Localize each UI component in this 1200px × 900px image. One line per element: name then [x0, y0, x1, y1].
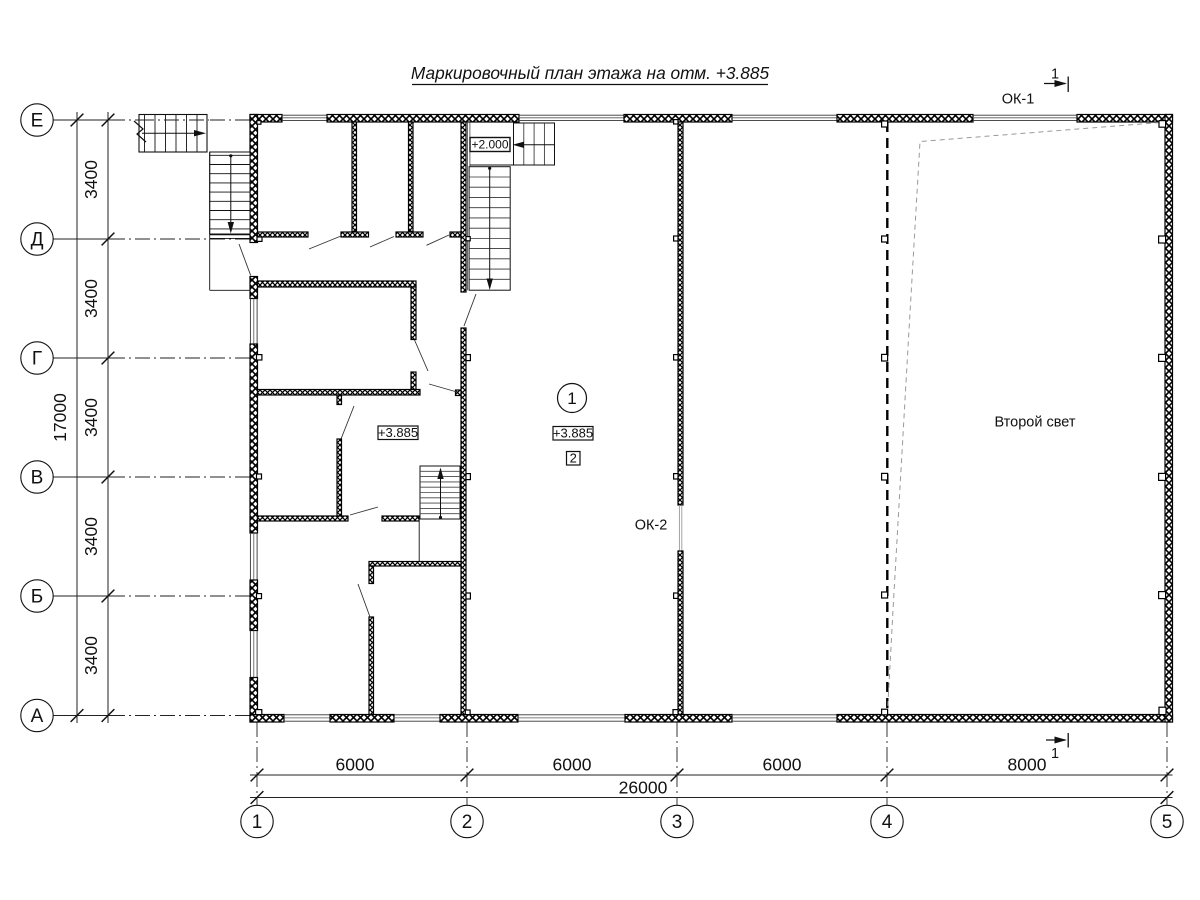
- svg-text:17000: 17000: [50, 393, 70, 442]
- svg-text:3: 3: [672, 812, 683, 833]
- svg-text:6000: 6000: [763, 755, 802, 775]
- svg-text:26000: 26000: [619, 778, 668, 798]
- svg-text:Второй свет: Второй свет: [994, 415, 1075, 431]
- svg-text:1: 1: [567, 389, 576, 408]
- svg-text:3400: 3400: [81, 398, 101, 437]
- svg-text:3400: 3400: [81, 160, 101, 199]
- svg-text:3400: 3400: [81, 517, 101, 556]
- svg-text:8000: 8000: [1008, 755, 1047, 775]
- svg-text:Маркировочный план этажа на от: Маркировочный план этажа на отм. +3.885: [411, 63, 770, 83]
- svg-text:+3.885: +3.885: [378, 425, 418, 440]
- svg-text:ОК-2: ОК-2: [635, 518, 668, 534]
- svg-text:4: 4: [882, 812, 893, 833]
- svg-text:Е: Е: [31, 111, 44, 132]
- svg-text:6000: 6000: [336, 755, 375, 775]
- svg-text:3400: 3400: [81, 279, 101, 318]
- svg-text:6000: 6000: [553, 755, 592, 775]
- svg-text:В: В: [31, 468, 44, 489]
- svg-text:2: 2: [570, 451, 577, 466]
- svg-text:Г: Г: [32, 349, 42, 370]
- svg-text:1: 1: [1051, 67, 1059, 83]
- svg-text:ОК-1: ОК-1: [1002, 92, 1035, 108]
- svg-text:+2.000: +2.000: [471, 137, 508, 151]
- svg-text:Б: Б: [31, 587, 43, 608]
- svg-text:3400: 3400: [81, 636, 101, 675]
- svg-text:Д: Д: [31, 230, 44, 251]
- svg-text:2: 2: [462, 812, 473, 833]
- svg-text:1: 1: [252, 812, 263, 833]
- svg-text:А: А: [31, 706, 44, 727]
- svg-text:5: 5: [1162, 812, 1173, 833]
- svg-text:+3.885: +3.885: [553, 426, 593, 441]
- svg-text:1: 1: [1051, 746, 1059, 762]
